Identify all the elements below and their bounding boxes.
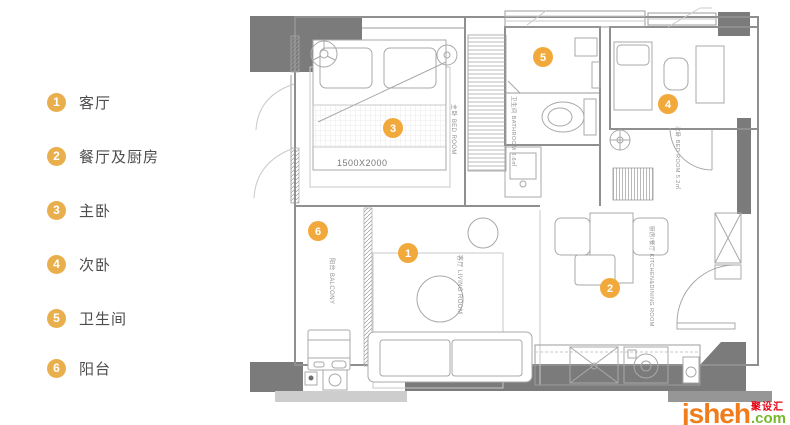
watermark-brand: jsheh — [682, 403, 750, 425]
utility-box — [323, 370, 347, 390]
desk — [696, 46, 724, 103]
room-living: 客厅 LIVING ROOM — [368, 218, 532, 388]
plan-marker-balcony: 6 — [308, 221, 328, 241]
plan-marker-living: 1 — [398, 243, 418, 263]
bed-size-label: 1500X2000 — [337, 158, 388, 168]
floor-mat — [613, 168, 653, 200]
plan-marker-dining: 2 — [600, 278, 620, 298]
floor-plan-drawing: 1500X2000 主卧 BED ROOM 卫生间 BATHROOM 3.6㎡ — [0, 0, 790, 425]
shower-fixture — [575, 38, 597, 56]
casement-window-swing — [256, 84, 294, 130]
page: 1 客厅 2 餐厅及厨房 3 主卧 4 次卧 5 卫生间 6 阳台 — [0, 0, 790, 425]
bathroom-label: 卫生间 BATHROOM 3.6㎡ — [510, 96, 518, 167]
dining-chair — [555, 218, 590, 255]
svg-text:1: 1 — [405, 248, 411, 260]
svg-text:4: 4 — [665, 99, 672, 111]
svg-text:3: 3 — [390, 123, 396, 135]
plan-marker-bathroom: 5 — [533, 47, 553, 67]
fridge-icon — [715, 213, 741, 279]
toilet-icon — [542, 99, 596, 135]
plan-marker-master-bedroom: 3 — [383, 118, 403, 138]
room-dining-kitchen: 厨房/餐厅 KITCHEN&DINING ROOM — [535, 213, 735, 385]
shower-fixture — [592, 62, 600, 88]
second-bedroom-label: 次卧 BED ROOM 5.2㎡ — [674, 126, 682, 190]
ceiling-light-icon — [610, 130, 630, 150]
pillow-icon — [617, 45, 649, 65]
room-bathroom: 卫生间 BATHROOM 3.6㎡ — [505, 38, 600, 197]
balcony-label: 阳台 BALCONY — [328, 258, 336, 304]
casement-window-swing — [254, 148, 294, 198]
entry-door — [677, 265, 735, 329]
room-second-bedroom: 次卧 BED ROOM 5.2㎡ — [614, 42, 724, 190]
vanity-sink — [505, 147, 541, 197]
bed-blanket — [313, 105, 446, 147]
sofa — [368, 332, 532, 382]
room-master-bedroom: 1500X2000 主卧 BED ROOM — [310, 35, 506, 187]
living-room-label: 客厅 LIVING ROOM — [456, 255, 464, 314]
svg-text:6: 6 — [315, 226, 321, 238]
wardrobe — [468, 35, 506, 171]
room-balcony: 阳台 BALCONY — [305, 258, 350, 390]
watermark-tld: .com — [751, 413, 786, 425]
svg-text:5: 5 — [540, 52, 546, 64]
chair-icon — [664, 58, 688, 90]
plan-marker-second-bedroom: 4 — [658, 94, 678, 114]
counter-unit — [683, 357, 699, 383]
svg-text:2: 2 — [607, 283, 613, 295]
side-table — [468, 218, 498, 248]
master-bedroom-label: 主卧 BED ROOM — [450, 104, 458, 155]
kitchen-dining-label: 厨房/餐厅 KITCHEN&DINING ROOM — [648, 226, 656, 327]
floor-drain-dot — [309, 376, 314, 381]
pillow-icon — [384, 48, 436, 88]
washing-machine-icon — [308, 330, 350, 370]
jsheh-watermark: jsheh 聚设汇 .com — [682, 403, 786, 425]
